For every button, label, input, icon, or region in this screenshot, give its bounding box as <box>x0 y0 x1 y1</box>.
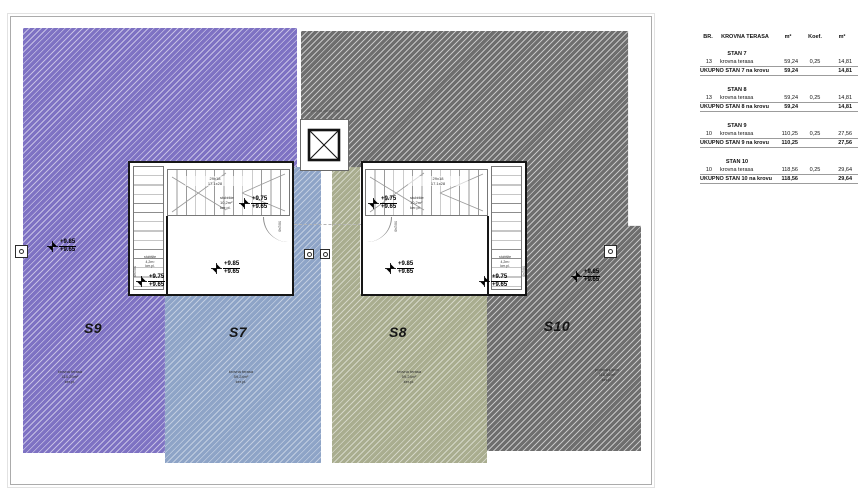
roof-drain-icon <box>15 245 28 258</box>
stair-run-label: 29x18 17.1x28 <box>408 176 468 186</box>
unit-label-s8: S8 <box>363 324 433 340</box>
elevation-marker: +9.85+9.65 <box>211 261 240 276</box>
table-header: BR. KROVNA TERASA m² Koef. m² <box>700 34 858 40</box>
unit-area-note-s9: krovna terasa 110,25m² ker.pl. <box>30 369 110 384</box>
roof-terrace-area-table: BR. KROVNA TERASA m² Koef. m² STAN 7 13 … <box>700 34 858 185</box>
roof-floor-plan: 29x18 17.1x28 stubište 10,2m² ker.pl. 90… <box>10 16 652 485</box>
level-marker-icon <box>571 271 582 282</box>
unit-area-note-s7: krovna terasa 59,24m² ker.pl. <box>201 369 281 384</box>
stair-treads-vertical <box>133 166 164 290</box>
elevation-marker: +9.85+9.65 <box>571 269 600 284</box>
table-total-row: UKUPNO STAN 8 na krovu 59,24 14,81 <box>700 104 858 112</box>
table-row: 10 krovna terasa 110,25 0,25 27,56 <box>700 131 858 139</box>
table-group-title: STAN 8 <box>700 83 858 95</box>
unit-label-s10: S10 <box>522 318 592 334</box>
table-row: 10 krovna terasa 118,56 0,25 29,64 <box>700 167 858 175</box>
door-swing-arc <box>367 217 392 242</box>
door-size-label: 90/240 <box>277 221 281 232</box>
small-stair-room-label: stubište 4,2m² ker.pl. <box>490 255 520 269</box>
elevation-marker: +9.85+9.65 <box>47 239 76 254</box>
level-marker-icon <box>385 263 396 274</box>
door-size-label: 90/240 <box>521 266 525 277</box>
unit-area-note-s8: krovna terasa 59,24m² ker.pl. <box>369 369 449 384</box>
table-total-row: UKUPNO STAN 10 na krovu 118,56 29,64 <box>700 176 858 184</box>
table-row: 13 krovna terasa 59,24 0,25 14,81 <box>700 95 858 103</box>
table-group-title: STAN 10 <box>700 155 858 167</box>
roof-drain-icon <box>604 245 617 258</box>
unit-area-note-s10: prohodni krov 118,56m² ker.pl. <box>567 367 647 382</box>
unit-label-s7: S7 <box>203 324 273 340</box>
roof-drain-icon <box>320 249 330 259</box>
table-total-row: UKUPNO STAN 9 na krovu 110,25 27,56 <box>700 140 858 148</box>
table-total-row: UKUPNO STAN 7 na krovu 59,24 14,81 <box>700 68 858 76</box>
level-marker-icon <box>239 198 250 209</box>
table-group-title: STAN 9 <box>700 119 858 131</box>
table-group-title: STAN 7 <box>700 47 858 59</box>
stair-inner-wall <box>166 216 168 294</box>
stair-run-label: 29x18 17.1x28 <box>185 176 245 186</box>
stair-room-label: stubište 10,2m² ker.pl. <box>410 195 424 211</box>
elevation-marker: +9.75+9.65 <box>136 274 165 289</box>
level-marker-icon <box>368 198 379 209</box>
level-marker-icon <box>136 276 147 287</box>
reference-dashed-line <box>294 224 361 225</box>
stair-treads-vertical <box>491 166 522 290</box>
skylight-shaft <box>300 119 349 171</box>
skylight-x-icon <box>307 128 341 162</box>
level-marker-icon <box>211 263 222 274</box>
stair-room-label: stubište 10,2m² ker.pl. <box>220 195 234 211</box>
unit-label-s9: S9 <box>58 320 128 336</box>
door-size-label: 90/240 <box>393 221 397 232</box>
elevation-marker: +9.75+9.65 <box>239 196 268 211</box>
small-stair-room-label: stubište 4,2m² ker.pl. <box>135 255 165 269</box>
roof-drain-icon <box>304 249 314 259</box>
level-marker-icon <box>479 276 490 287</box>
elevation-marker: +9.85+9.65 <box>385 261 414 276</box>
door-size-label: 90/240 <box>132 266 136 277</box>
door-swing-arc <box>263 217 288 242</box>
skylight-label: kupola za osvjetljenje <box>279 109 369 113</box>
elevation-marker: +9.75+9.65 <box>368 196 397 211</box>
table-row: 13 krovna terasa 59,24 0,25 14,81 <box>700 59 858 67</box>
level-marker-icon <box>47 241 58 252</box>
elevation-marker: +9.75+9.65 <box>479 274 508 289</box>
